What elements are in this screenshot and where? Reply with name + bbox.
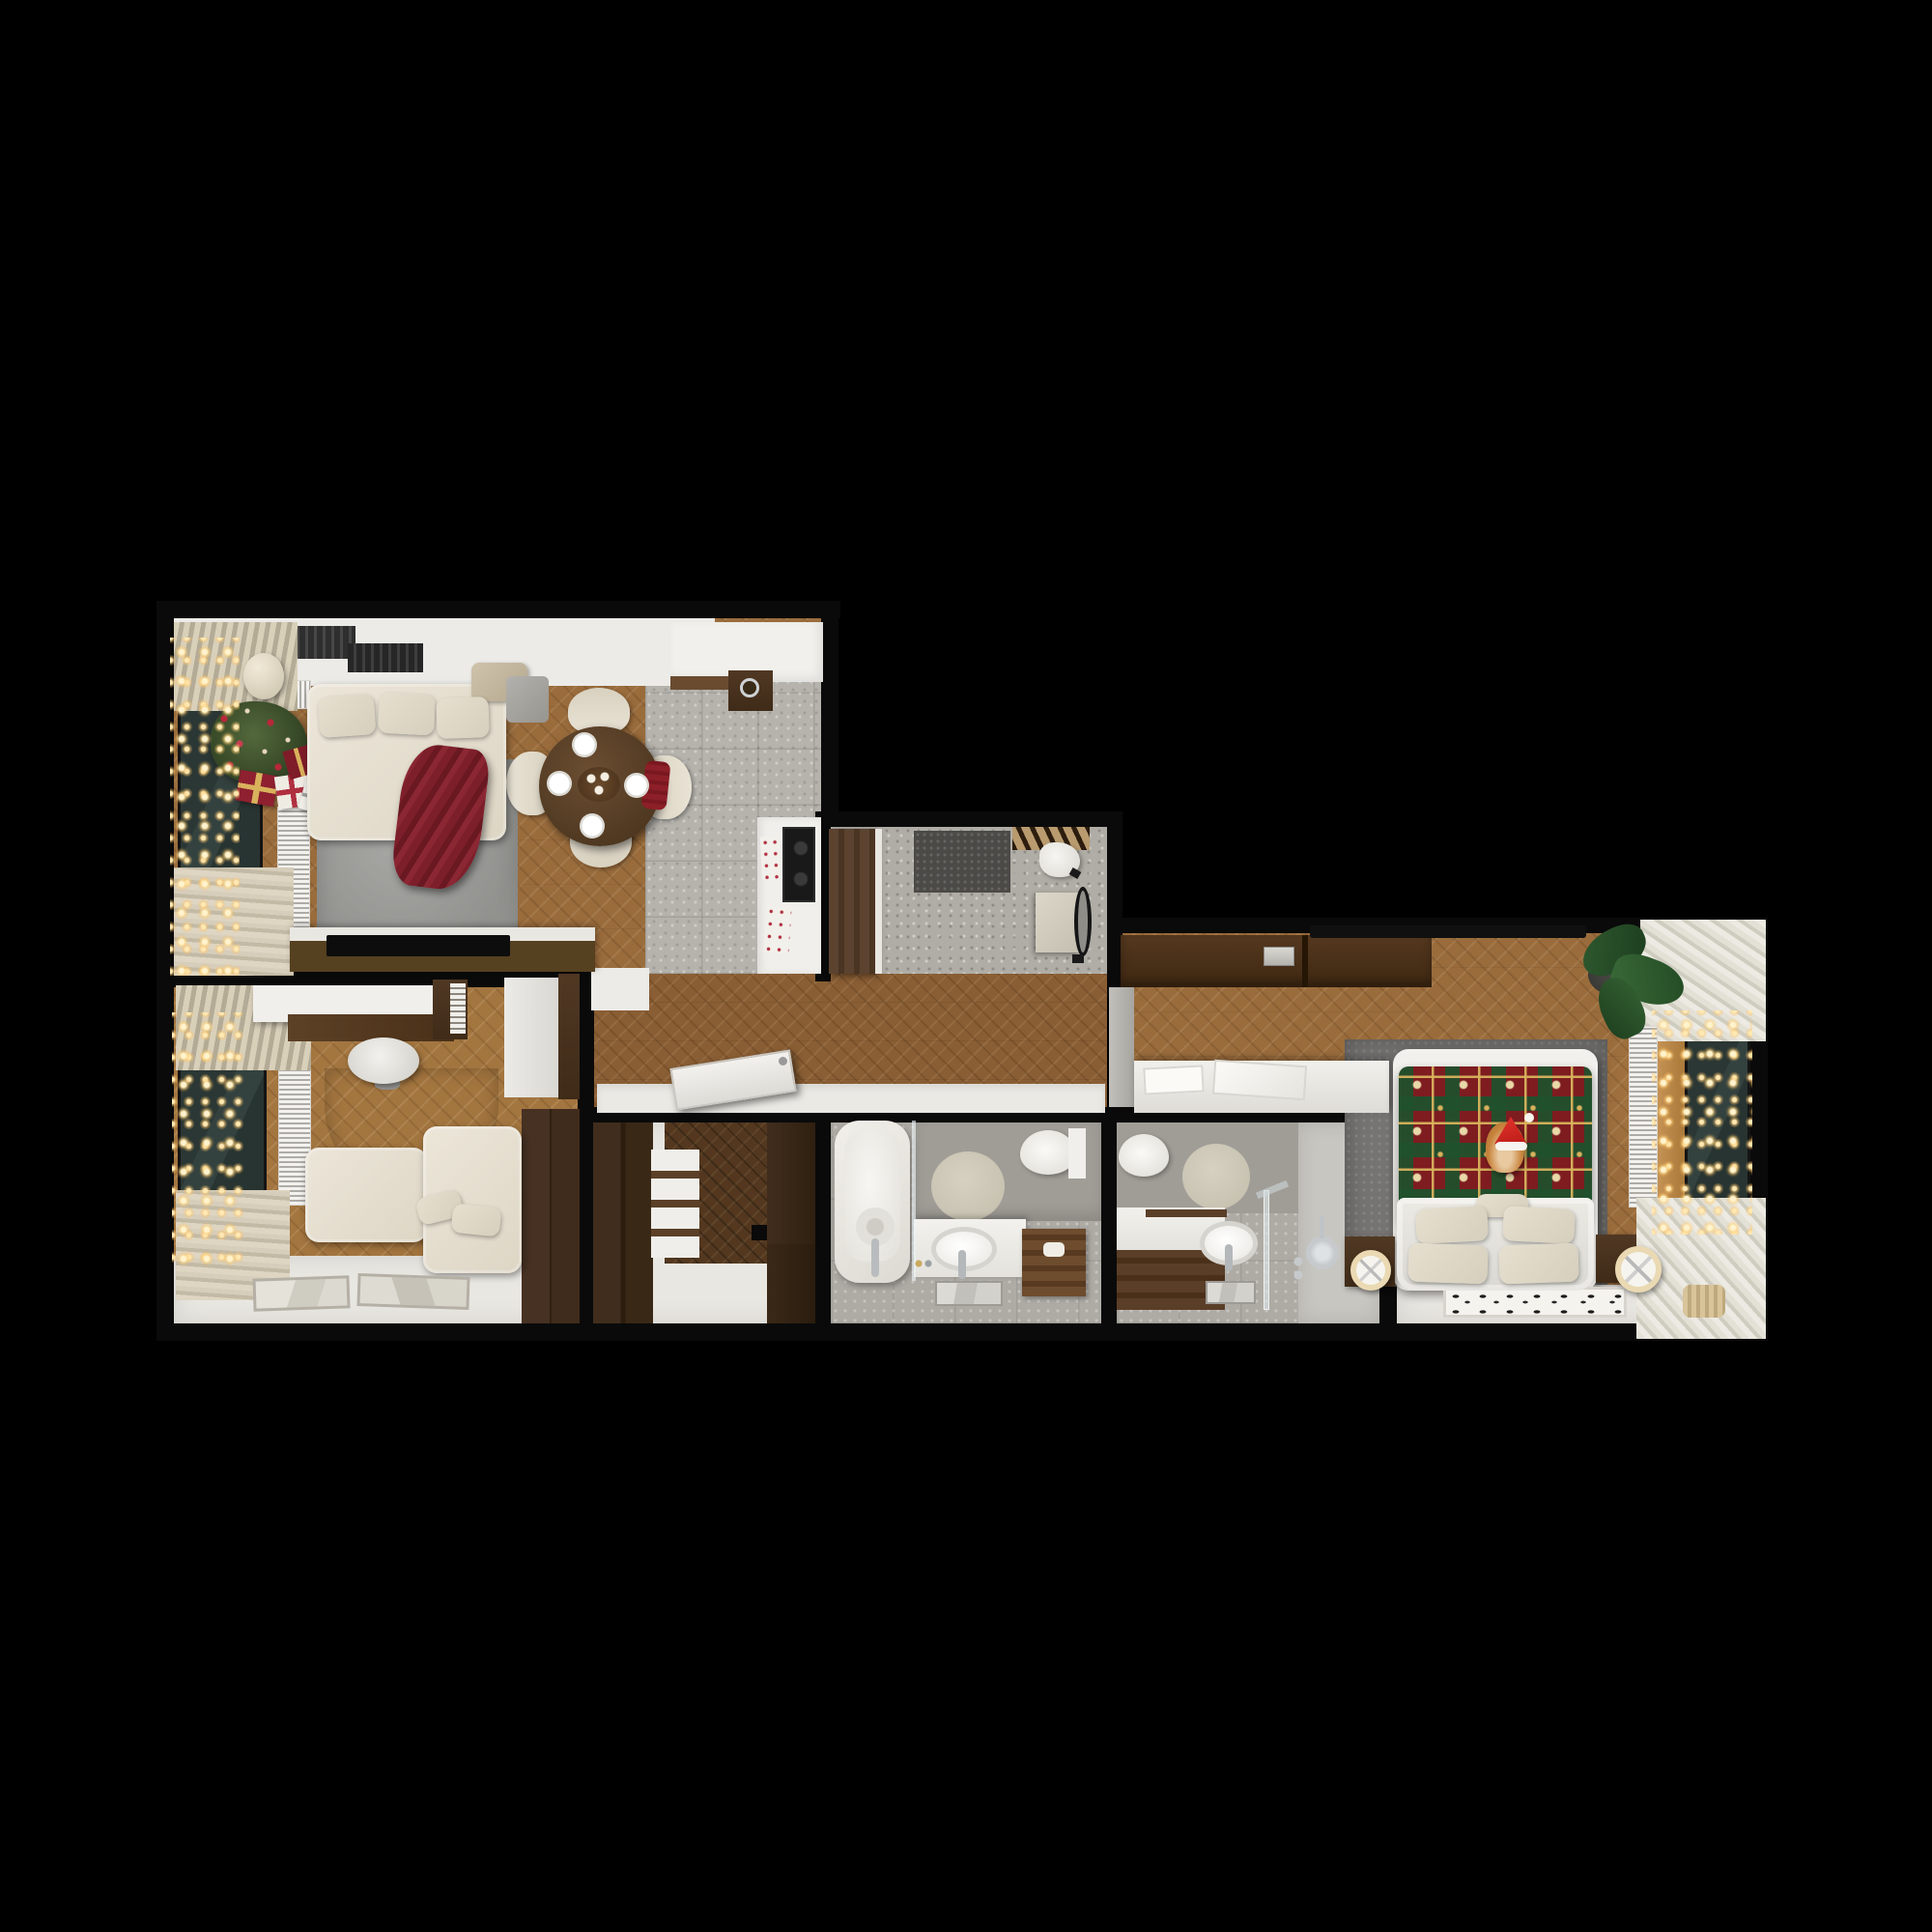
cooktop — [782, 827, 815, 902]
screenshot-root: { "scene": { "type": "photorealistic top… — [0, 0, 1932, 1932]
artwork-frame-2 — [356, 1273, 469, 1310]
living-garland-lights — [170, 638, 240, 976]
door-handle — [779, 1057, 787, 1065]
bath2-counter-wood-edge — [1146, 1209, 1227, 1217]
wall-living-right — [821, 601, 838, 827]
closet-wardrobe-right-upper — [767, 1122, 815, 1258]
office-sofa-chaise — [305, 1148, 427, 1242]
pendant-ball-lamp — [243, 653, 284, 699]
closet-wardrobe-left — [593, 1122, 653, 1323]
bed-pillow-4 — [1498, 1243, 1578, 1285]
sofa-cushion-1 — [318, 694, 377, 738]
office-desk-walnut — [288, 1014, 454, 1041]
ring-lamp-left — [1350, 1250, 1391, 1291]
place-setting-2 — [547, 771, 572, 796]
bath1-bottles — [914, 1258, 935, 1269]
bath1-faucet — [958, 1250, 966, 1279]
shower-valves — [1289, 1256, 1308, 1281]
side-table-grey — [506, 676, 549, 723]
entry-wall-hook-2 — [1072, 954, 1084, 963]
shower-head — [1306, 1236, 1339, 1269]
towel-ladder — [1022, 1229, 1086, 1296]
wall-living-top — [156, 601, 840, 618]
bath1-mirror — [935, 1281, 1003, 1306]
santa-hat-pom — [1524, 1113, 1534, 1122]
ring-lamp-right — [1615, 1246, 1662, 1293]
ladder-towel-2 — [1043, 1242, 1065, 1257]
bath2-toilet-bowl — [1119, 1134, 1169, 1177]
place-setting-1 — [572, 732, 597, 757]
entrance-door-frame — [875, 829, 882, 974]
candle-centerpiece — [578, 767, 620, 802]
wardrobe-recessed-panel — [1264, 947, 1294, 966]
office-cabinet-walnut-strip — [558, 974, 580, 1099]
bath2-mirror — [1206, 1281, 1256, 1304]
bench-tray-1 — [1143, 1065, 1204, 1094]
wall-office-closet — [578, 970, 594, 1341]
shower-glass-screen — [1264, 1190, 1269, 1310]
bath2-faucet — [1225, 1244, 1233, 1271]
bed-pillow-3 — [1407, 1243, 1488, 1285]
place-setting-3 — [624, 773, 649, 798]
kitchen-faucet — [740, 678, 759, 697]
bedroom-tv-bar — [1310, 925, 1586, 938]
place-setting-4 — [580, 813, 605, 838]
bed-pillow-2 — [1502, 1206, 1576, 1244]
wall-bottom-main — [156, 1323, 1768, 1341]
closet-shelf-unit — [651, 1150, 699, 1258]
bed-pillow-1 — [1415, 1206, 1489, 1244]
bedroom-basket — [1683, 1285, 1725, 1318]
kitchen-towel-1 — [760, 837, 781, 880]
office-wardrobe — [522, 1109, 580, 1323]
office-pillow-2 — [451, 1203, 502, 1236]
artwork-frame-1 — [252, 1275, 350, 1311]
hallway-corner-partition — [591, 968, 649, 1010]
office-tall-cabinet — [504, 978, 560, 1097]
wall-bedroom-left — [1107, 918, 1121, 997]
bench-tray-2 — [1212, 1060, 1307, 1101]
bedroom-patterned-rug — [1443, 1287, 1627, 1318]
living-tv — [327, 935, 510, 956]
kitchen-towel-2 — [763, 905, 791, 953]
wall-closet-bath1 — [815, 1107, 831, 1341]
bath2-round-rug — [1182, 1144, 1250, 1209]
closet-wardrobe-right-lower — [767, 1244, 815, 1323]
gift-box-red — [236, 770, 279, 807]
bath1-toilet-tank — [1068, 1128, 1086, 1179]
kitchen-wood-strip — [670, 676, 728, 690]
bath1-round-rug — [931, 1151, 1005, 1221]
wall-entry-top — [815, 811, 1122, 827]
shower-arm — [1320, 1215, 1324, 1238]
bedroom-garland-lights — [1652, 1010, 1752, 1235]
office-garland-lights — [172, 1012, 245, 1273]
santa-hat-trim — [1495, 1142, 1527, 1151]
wardrobe-door-split — [1302, 935, 1308, 987]
tub-floor-faucet — [871, 1238, 879, 1277]
entrance-door — [829, 829, 875, 974]
sofa-cushion-3 — [436, 696, 489, 739]
office-chair — [348, 1037, 419, 1084]
sofa-cushion-2 — [378, 693, 436, 736]
ceiling-vent-2 — [348, 643, 423, 672]
entry-oval-mirror — [1074, 887, 1092, 956]
entry-doormat — [914, 831, 1010, 893]
wall-bath1-bath2 — [1101, 1107, 1117, 1341]
bedroom-grey-partition — [1109, 987, 1134, 1107]
office-desk-shelf — [450, 983, 466, 1034]
